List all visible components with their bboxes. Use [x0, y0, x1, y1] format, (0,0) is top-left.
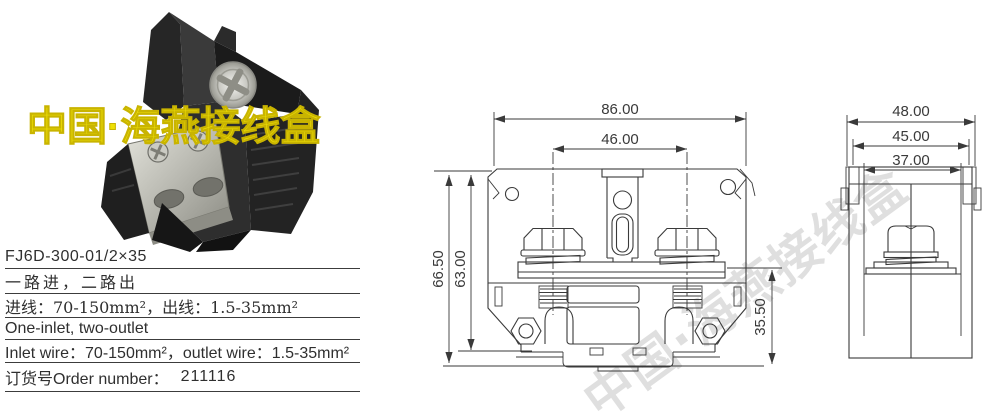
spec-wires-cn: 进线：70-150mm²，出线：1.5-35mm²	[5, 294, 360, 318]
spec-table: FJ6D-300-01/2×35 一路进，二路出 进线：70-150mm²，出线…	[5, 246, 360, 392]
route-en-text: One-inlet, two-outlet	[5, 320, 148, 338]
spec-route-cn: 一路进，二路出	[5, 269, 360, 294]
front-threads	[539, 286, 702, 308]
side-view	[841, 163, 981, 358]
front-hole-right	[721, 180, 736, 195]
dim-side-inner-width: 37.00	[892, 152, 930, 169]
front-view	[443, 152, 764, 371]
front-center-post	[602, 169, 643, 262]
route-cn-text: 一路进，二路出	[5, 269, 138, 293]
order-value: 211116	[181, 368, 237, 386]
front-centerlines	[553, 152, 687, 315]
dim-front-bolt-spacing: 46.00	[601, 131, 639, 148]
photo-watermark-text: 中国·海燕接线盒	[27, 104, 357, 150]
dim-front-lower-height: 35.50	[752, 298, 769, 336]
catalog-page: 中国·海燕接线盒 FJ6D-300-01/2×35 一路进，二路出 进线：70-…	[0, 0, 996, 416]
wires-en-text: Inlet wire：70-150mm²，outlet wire：1.5-35m…	[5, 339, 349, 363]
dim-front-body-height: 63.00	[452, 250, 469, 288]
wires-cn-text: 进线：70-150mm²，出线：1.5-35mm²	[5, 294, 298, 318]
dim-front-top-width: 86.00	[601, 101, 639, 118]
front-hole-left	[506, 188, 519, 201]
spec-route-en: One-inlet, two-outlet	[5, 318, 360, 340]
dim-front-total-height: 66.50	[430, 250, 447, 288]
dim-side-mid-width: 45.00	[892, 128, 930, 145]
model-text: FJ6D-300-01/2×35	[5, 248, 147, 266]
front-view-dimensions	[434, 112, 782, 364]
spec-wires-en: Inlet wire：70-150mm²，outlet wire：1.5-35m…	[5, 340, 360, 363]
spec-model: FJ6D-300-01/2×35	[5, 246, 360, 269]
spec-order-number: 订货号Order number： 211116	[5, 363, 360, 392]
technical-drawings: 86.00 46.00 66.50 63.00 35.50	[420, 60, 996, 416]
dim-side-outer-width: 48.00	[892, 103, 930, 120]
front-busbar	[518, 262, 725, 278]
order-label: 订货号Order number：	[5, 365, 169, 389]
din-rail	[516, 348, 720, 371]
